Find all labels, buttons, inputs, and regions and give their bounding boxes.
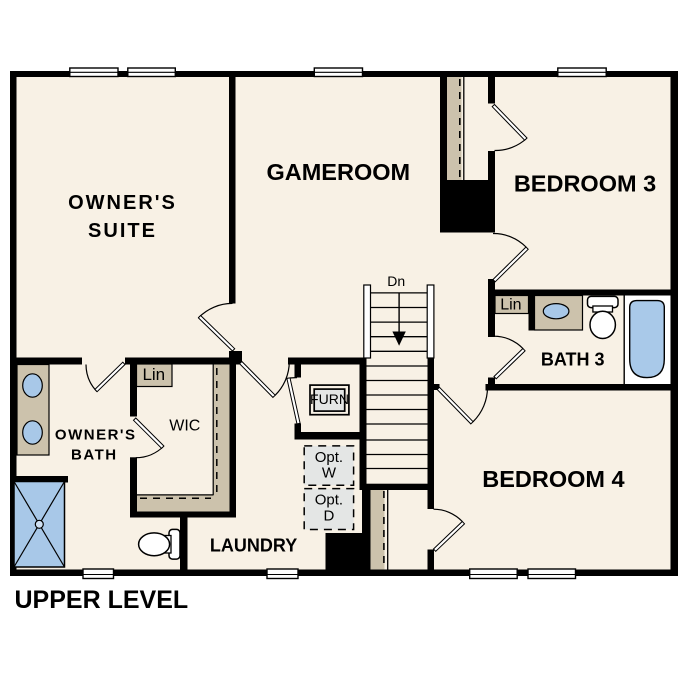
svg-text:FURN: FURN [310,391,349,407]
svg-text:BEDROOM 3: BEDROOM 3 [514,170,656,196]
svg-text:Lin: Lin [500,297,521,314]
svg-text:WIC: WIC [169,418,200,435]
svg-text:BATH 3: BATH 3 [541,349,605,369]
svg-text:Dn: Dn [387,273,405,289]
svg-text:GAMEROOM: GAMEROOM [266,159,410,185]
svg-text:OWNER'S: OWNER'S [55,427,137,444]
svg-text:Opt.: Opt. [315,492,343,509]
svg-text:LAUNDRY: LAUNDRY [210,535,297,555]
svg-text:BATH: BATH [71,446,118,463]
svg-text:Lin: Lin [142,365,165,384]
svg-text:UPPER LEVEL: UPPER LEVEL [15,586,189,614]
svg-text:Opt.: Opt. [315,449,343,466]
svg-text:OWNER'S: OWNER'S [68,192,177,214]
svg-text:W: W [322,465,337,482]
svg-text:BEDROOM 4: BEDROOM 4 [482,466,624,492]
svg-text:D: D [323,507,334,524]
svg-text:SUITE: SUITE [88,220,157,242]
